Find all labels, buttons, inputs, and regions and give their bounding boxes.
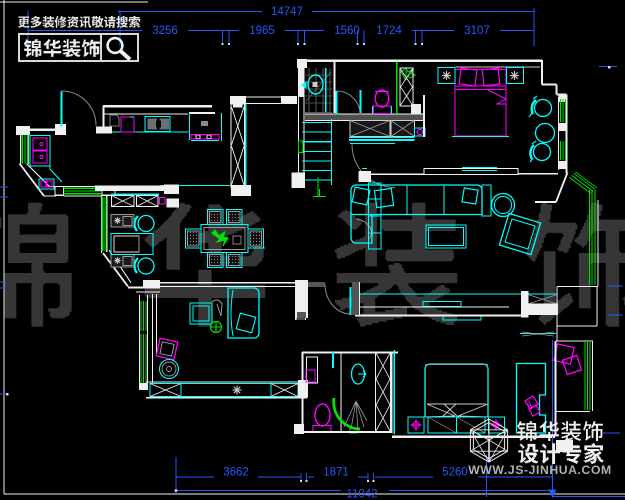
- svg-text:1965: 1965: [249, 25, 275, 37]
- svg-text:1724: 1724: [376, 25, 402, 37]
- svg-text:14747: 14747: [271, 6, 303, 18]
- svg-text:11042: 11042: [346, 489, 377, 500]
- svg-text:1871: 1871: [323, 467, 349, 479]
- svg-text:3256: 3256: [152, 25, 178, 37]
- svg-text:5260: 5260: [442, 467, 468, 479]
- svg-text:WWW.JS-JINHUA.COM: WWW.JS-JINHUA.COM: [468, 463, 612, 477]
- svg-text:1560: 1560: [334, 25, 360, 37]
- svg-text:3662: 3662: [223, 467, 249, 479]
- svg-text:3107: 3107: [464, 25, 490, 37]
